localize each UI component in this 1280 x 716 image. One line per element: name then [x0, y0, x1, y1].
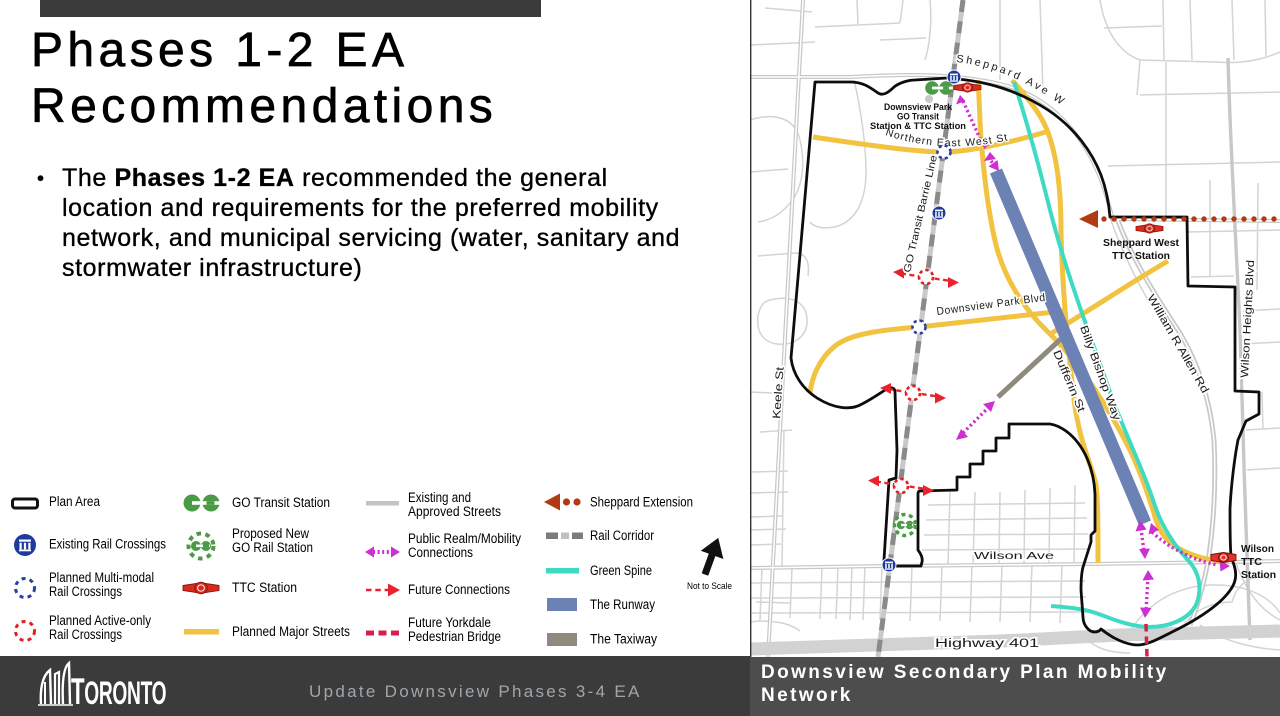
- svg-text:Connections: Connections: [408, 545, 473, 560]
- svg-text:The Taxiway: The Taxiway: [590, 632, 657, 647]
- svg-text:Not to Scale: Not to Scale: [687, 581, 732, 592]
- svg-text:Planned Multi-modal: Planned Multi-modal: [49, 570, 154, 585]
- svg-text:Pedestrian Bridge: Pedestrian Bridge: [408, 629, 501, 644]
- svg-text:Station & TTC Station: Station & TTC Station: [870, 121, 966, 131]
- svg-text:Rail Crossings: Rail Crossings: [49, 627, 122, 642]
- svg-text:Future Yorkdale: Future Yorkdale: [408, 615, 491, 630]
- svg-text:Public Realm/Mobility: Public Realm/Mobility: [408, 531, 521, 546]
- svg-text:Highway 401: Highway 401: [935, 638, 1039, 650]
- svg-text:GO Transit: GO Transit: [897, 112, 939, 122]
- svg-text:Existing Rail Crossings: Existing Rail Crossings: [49, 537, 166, 552]
- svg-text:GO Transit Station: GO Transit Station: [232, 495, 330, 510]
- svg-text:Future Connections: Future Connections: [408, 582, 510, 597]
- svg-text:Wilson: Wilson: [1241, 544, 1274, 555]
- svg-text:The Runway: The Runway: [590, 597, 655, 612]
- svg-text:Green Spine: Green Spine: [590, 563, 652, 578]
- svg-text:Planned Major Streets: Planned Major Streets: [232, 624, 350, 639]
- svg-text:Sheppard West: Sheppard West: [1103, 238, 1180, 249]
- svg-text:TTC: TTC: [1241, 557, 1262, 568]
- svg-text:Sheppard Extension: Sheppard Extension: [590, 495, 693, 510]
- svg-text:Wilson Ave: Wilson Ave: [974, 550, 1054, 562]
- svg-text:Existing and: Existing and: [408, 490, 471, 505]
- svg-text:Rail Corridor: Rail Corridor: [590, 528, 654, 543]
- svg-text:Plan Area: Plan Area: [49, 494, 100, 509]
- svg-text:ORONTO: ORONTO: [84, 675, 166, 710]
- svg-text:TTC Station: TTC Station: [1112, 251, 1170, 262]
- svg-text:Planned Active-only: Planned Active-only: [49, 613, 151, 628]
- svg-text:GO Rail Station: GO Rail Station: [232, 540, 313, 555]
- svg-text:TTC Station: TTC Station: [232, 580, 297, 595]
- svg-text:Proposed New: Proposed New: [232, 526, 309, 541]
- svg-text:T: T: [71, 671, 85, 710]
- svg-text:Approved Streets: Approved Streets: [408, 504, 501, 519]
- svg-text:Downsview Park: Downsview Park: [884, 102, 953, 112]
- svg-text:Rail Crossings: Rail Crossings: [49, 584, 122, 599]
- svg-text:Station: Station: [1241, 570, 1276, 581]
